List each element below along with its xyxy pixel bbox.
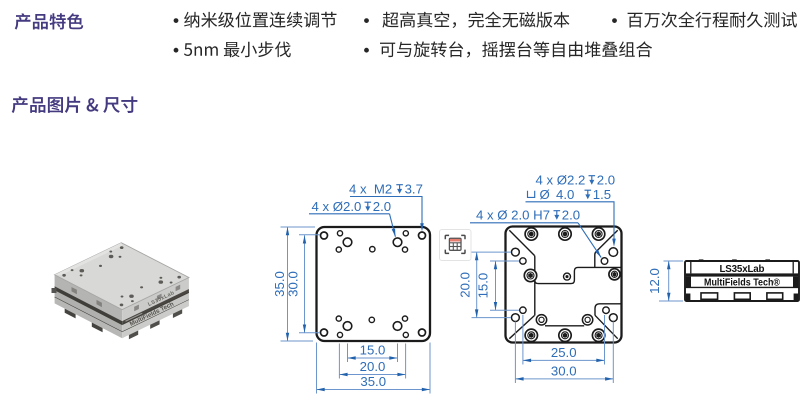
svg-text:3.7: 3.7 [405,182,423,197]
svg-text:4 x M2: 4 x M2 [349,182,392,197]
svg-text:30.0: 30.0 [286,271,301,297]
svg-text:2.0: 2.0 [562,208,580,223]
svg-text:LS35xLab: LS35xLab [720,264,765,275]
svg-text:12.0: 12.0 [647,268,662,294]
svg-text:2.0: 2.0 [597,173,615,188]
svg-text:4.0: 4.0 [556,187,574,202]
svg-text:4 x Ø2.2: 4 x Ø2.2 [536,173,586,188]
svg-text:20.0: 20.0 [457,272,472,298]
svg-text:25.0: 25.0 [551,345,577,360]
svg-text:4 x Ø 2.0 H7: 4 x Ø 2.0 H7 [476,208,550,223]
svg-text:15.0: 15.0 [360,343,386,358]
svg-text:30.0: 30.0 [551,363,577,378]
svg-text:Ø: Ø [540,187,550,202]
svg-text:15.0: 15.0 [475,273,490,299]
svg-text:20.0: 20.0 [360,359,386,374]
svg-text:1.5: 1.5 [593,187,611,202]
svg-text:2.0: 2.0 [373,199,391,214]
svg-text:MultiFields Tech®: MultiFields Tech® [704,278,781,289]
svg-text:35.0: 35.0 [272,271,287,297]
svg-text:4 x Ø2.0: 4 x Ø2.0 [312,199,362,214]
svg-text:35.0: 35.0 [360,374,386,389]
